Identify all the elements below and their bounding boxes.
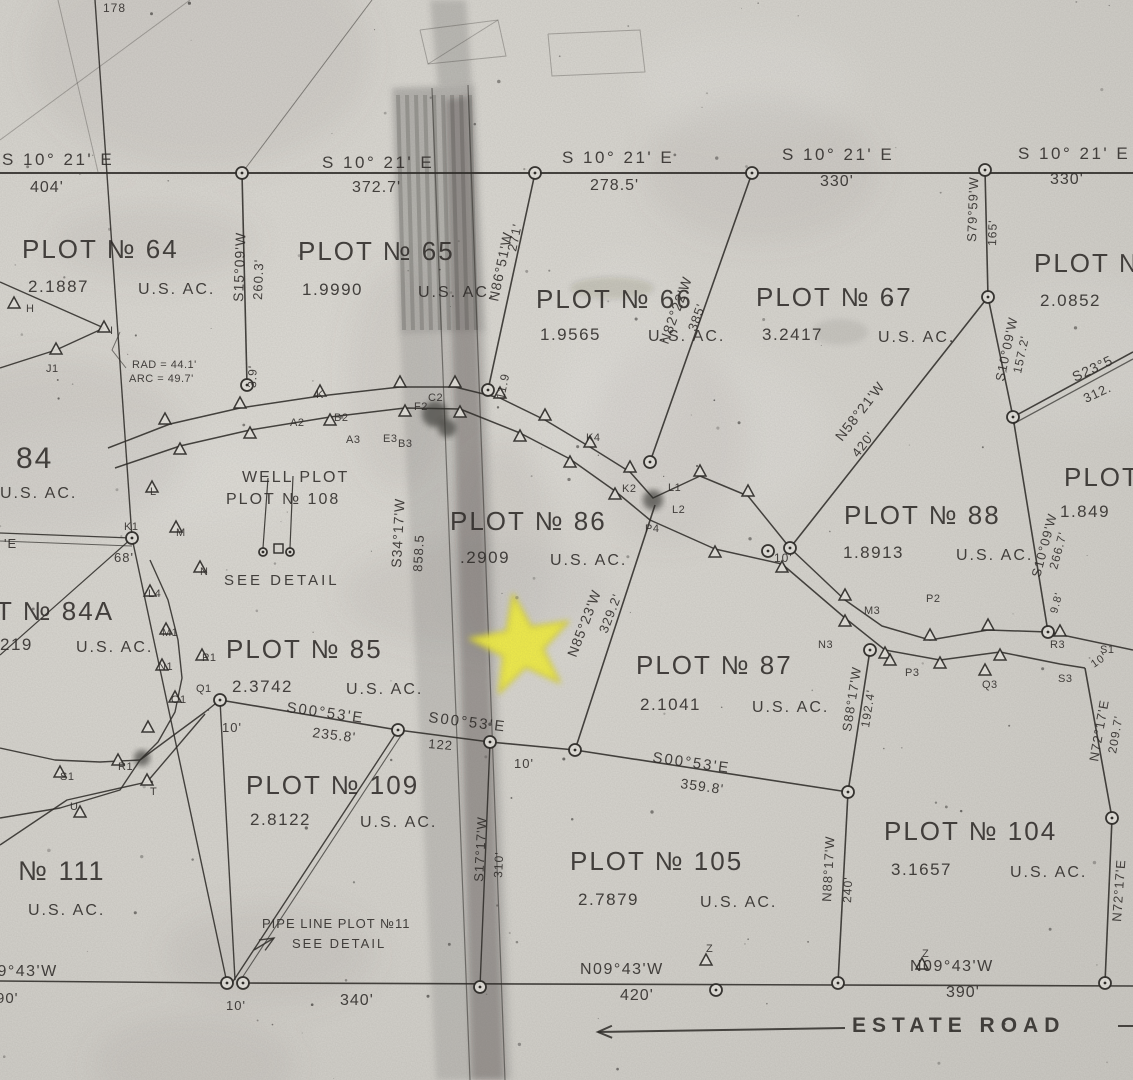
survey-map: PLOT № 642.1887U.S. AC.PLOT № 651.9990U.… [0,0,1133,1080]
paper-grain [0,0,1133,1080]
estate-road-label: ESTATE ROAD [852,1014,1065,1038]
map-canvas: PLOT № 642.1887U.S. AC.PLOT № 651.9990U.… [0,0,1133,1080]
